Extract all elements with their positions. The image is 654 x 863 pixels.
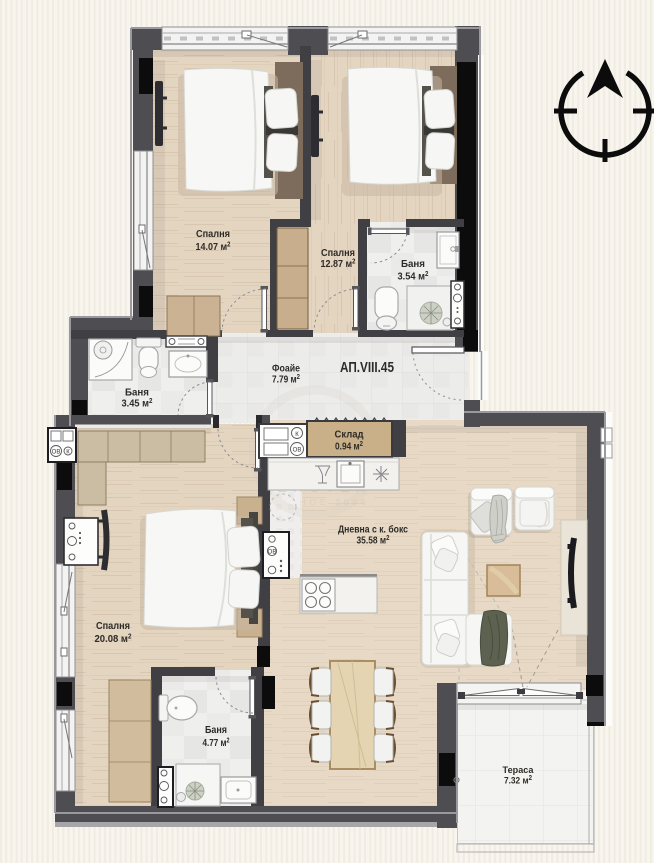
svg-text:АП.VIII.45: АП.VIII.45 — [340, 360, 394, 376]
svg-text:Баня: Баня — [401, 258, 425, 270]
svg-text:0.94 м2: 0.94 м2 — [335, 441, 363, 453]
svg-text:ОВ: ОВ — [52, 450, 61, 456]
svg-text:7.79 м2: 7.79 м2 — [272, 374, 300, 386]
svg-text:Дневна с к. бокс: Дневна с к. бокс — [338, 525, 408, 536]
svg-text:Спалня: Спалня — [196, 228, 230, 240]
svg-text:7.32 м2: 7.32 м2 — [504, 775, 532, 787]
svg-text:К: К — [295, 432, 299, 438]
svg-text:ОВ: ОВ — [293, 448, 302, 454]
svg-text:4.77 м2: 4.77 м2 — [203, 737, 230, 749]
svg-text:Спалня: Спалня — [96, 620, 130, 632]
svg-text:Баня: Баня — [205, 724, 227, 736]
svg-text:12.87 м2: 12.87 м2 — [321, 258, 356, 270]
svg-text:К: К — [66, 450, 70, 456]
svg-text:ОВ: ОВ — [268, 550, 277, 556]
svg-text:14.07 м2: 14.07 м2 — [196, 241, 231, 253]
svg-text:20.08 м2: 20.08 м2 — [95, 633, 132, 645]
svg-text:35.58 м2: 35.58 м2 — [357, 535, 390, 547]
svg-text:Фоайе: Фоайе — [272, 364, 300, 375]
svg-text:3.54 м2: 3.54 м2 — [398, 271, 429, 283]
svg-text:НОЕ 2006: НОЕ 2006 — [300, 498, 369, 507]
svg-text:Склад: Склад — [335, 430, 365, 441]
svg-text:3.45 м2: 3.45 м2 — [122, 398, 153, 410]
